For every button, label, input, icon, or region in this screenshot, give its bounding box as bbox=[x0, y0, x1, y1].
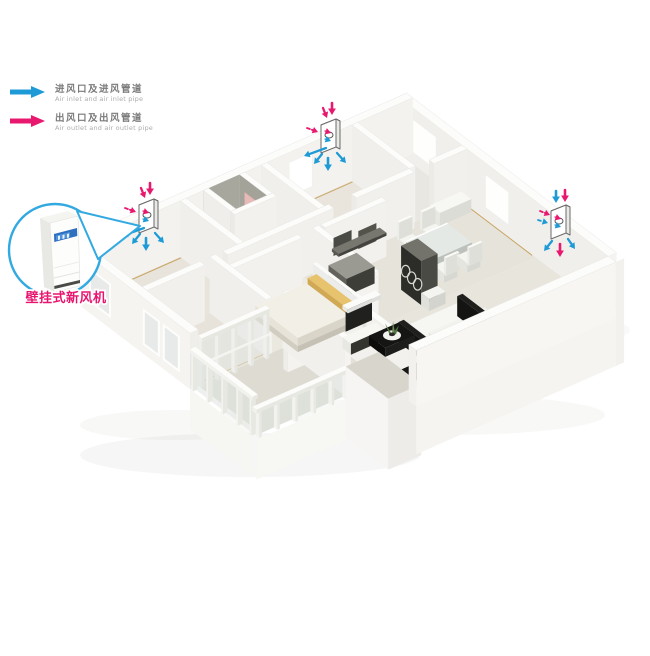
legend-item-inlet: 进风口及进风管道 Air inlet and air inlet pipe bbox=[10, 84, 153, 103]
wall-unit-device bbox=[40, 211, 80, 292]
legend-outlet-label-en: Air outlet and air outlet pipe bbox=[55, 124, 153, 132]
legend-inlet-label-zh: 进风口及进风管道 bbox=[55, 84, 143, 95]
legend-outlet-label-zh: 出风口及出风管道 bbox=[55, 113, 153, 124]
legend-item-outlet: 出风口及出风管道 Air outlet and air outlet pipe bbox=[10, 113, 153, 132]
legend: 进风口及进风管道 Air inlet and air inlet pipe 出风… bbox=[10, 84, 153, 142]
fresh-air-installation-illustration: 壁挂式新风机 进风口及进风管道 Air inlet and air inlet … bbox=[0, 0, 650, 656]
legend-inlet-label-en: Air inlet and air inlet pipe bbox=[55, 95, 143, 103]
callout-label: 壁挂式新风机 bbox=[25, 290, 106, 306]
outlet-arrow-icon bbox=[10, 114, 46, 128]
fresh-air-unit-icon bbox=[551, 205, 570, 239]
inlet-arrow-icon bbox=[10, 85, 46, 99]
